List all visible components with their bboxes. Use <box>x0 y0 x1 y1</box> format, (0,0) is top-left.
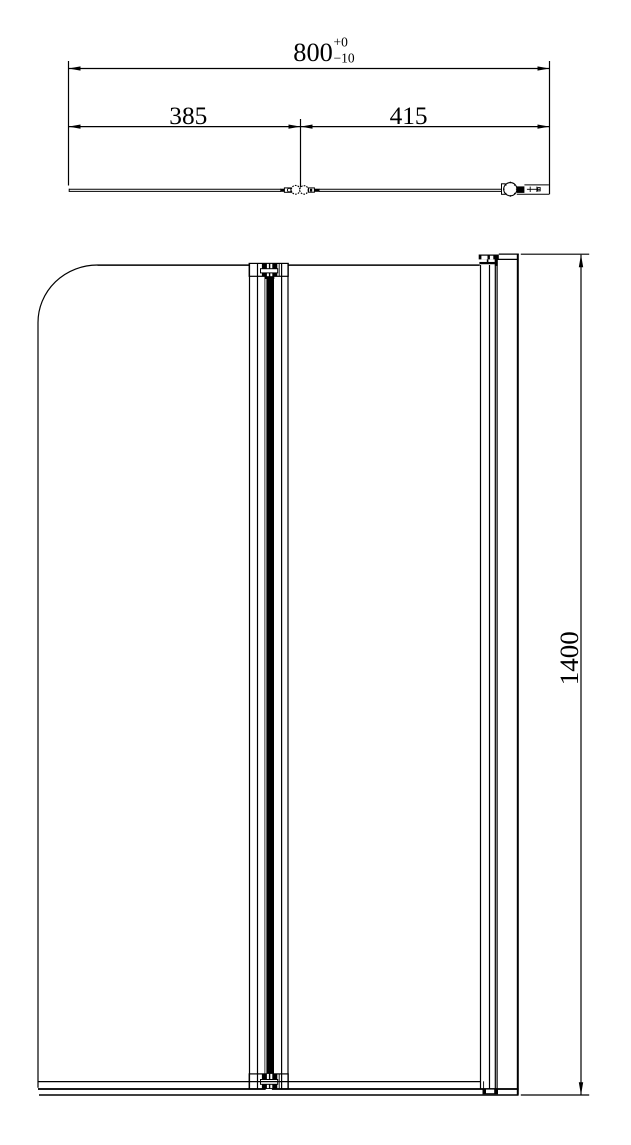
svg-text:415: 415 <box>390 101 428 130</box>
svg-text:1400: 1400 <box>554 631 584 685</box>
svg-text:+0: +0 <box>334 34 349 49</box>
svg-text:385: 385 <box>169 101 207 130</box>
svg-text:−10: −10 <box>334 51 355 66</box>
svg-text:800: 800 <box>293 37 333 67</box>
